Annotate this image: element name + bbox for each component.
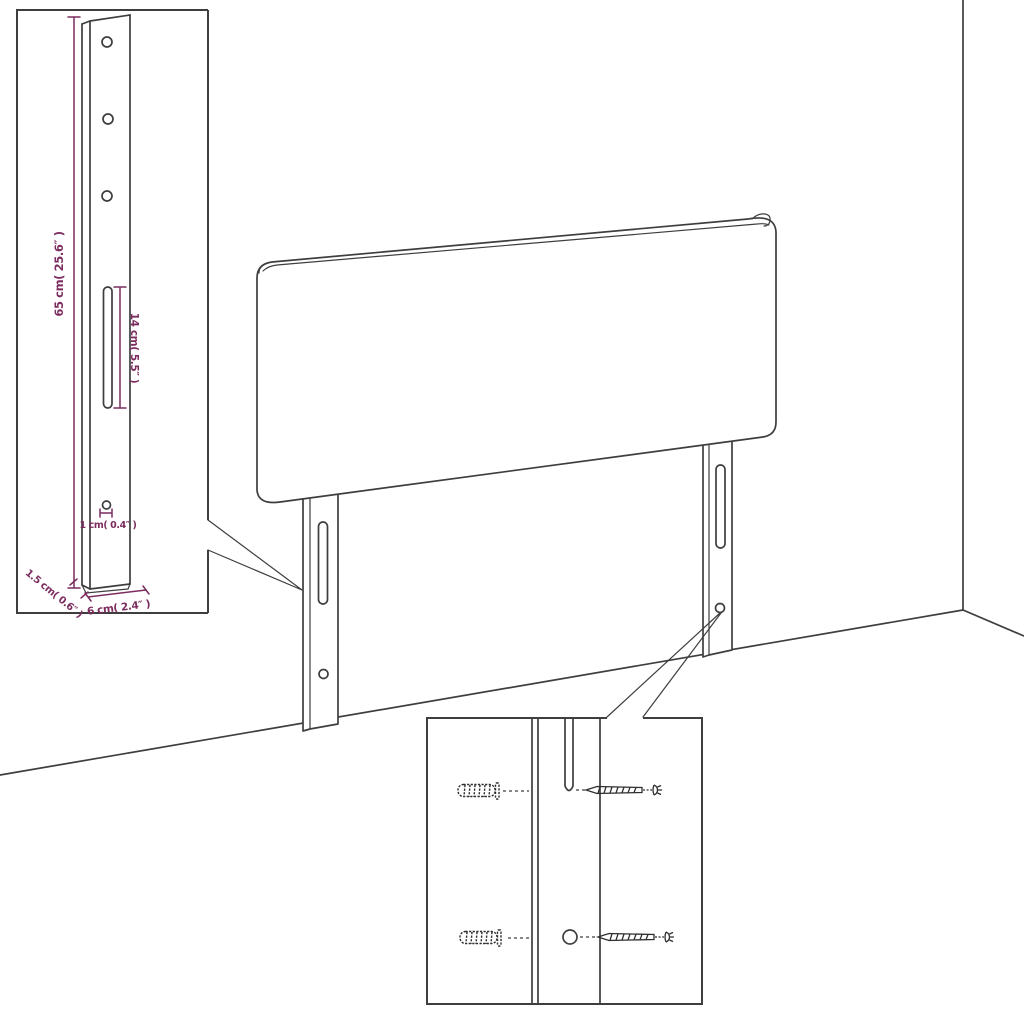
- dim-hole-label: 1 cm( 0.4″ ): [79, 520, 136, 531]
- callout-left: [208, 520, 302, 590]
- dimension-hole: 1 cm( 0.4″ ): [79, 509, 136, 531]
- screw-icon-top: [586, 785, 662, 795]
- bracket-drawing: [82, 15, 130, 593]
- inset-detail-left: 65 cm( 25.6″ ) 14 cm( 5.5″ ) 1 cm( 0.4″ …: [17, 10, 208, 620]
- floor-line-left: [0, 610, 963, 775]
- dimension-height: 65 cm( 25.6″ ): [52, 17, 80, 588]
- right-leg-body: [703, 415, 732, 657]
- leg-details: [319, 465, 726, 679]
- bracket-vertical-edges: [82, 15, 130, 589]
- bracket-hole-3: [102, 191, 112, 201]
- diagram-canvas: 65 cm( 25.6″ ) 14 cm( 5.5″ ) 1 cm( 0.4″ …: [0, 0, 1024, 1024]
- magnified-leg-strip: [532, 719, 600, 1003]
- left-leg-body: [303, 465, 338, 731]
- headboard-right-leg: [703, 415, 732, 657]
- alignment-dashes: [503, 790, 597, 938]
- floor-line-right: [963, 610, 1024, 636]
- inset-detail-bottom: [427, 718, 702, 1004]
- bracket-hole-2: [103, 114, 113, 124]
- wall-plug-icon-bottom: [460, 930, 501, 946]
- wall-plug-icon-top: [458, 783, 499, 799]
- bracket-slot: [104, 287, 113, 408]
- bracket-small-hole: [103, 501, 111, 509]
- callout-left-lines: [208, 520, 302, 590]
- dim-height-label: 65 cm( 25.6″ ): [52, 231, 66, 316]
- dim-height-line: [68, 17, 80, 588]
- dim-slot-line: [114, 287, 126, 408]
- callout-right: [607, 613, 721, 717]
- headboard-dimension-diagram: 65 cm( 25.6″ ) 14 cm( 5.5″ ) 1 cm( 0.4″ …: [0, 0, 1024, 1024]
- screw-icon-bottom: [598, 932, 674, 942]
- headboard-left-leg: [303, 465, 338, 731]
- headboard-panel: [257, 214, 776, 503]
- magnified-hole: [563, 930, 577, 944]
- dim-hole-bracket: [100, 509, 112, 517]
- dimension-slot: 14 cm( 5.5″ ): [114, 287, 140, 408]
- dim-slot-label: 14 cm( 5.5″ ): [128, 313, 140, 383]
- callout-right-lines: [607, 613, 721, 717]
- dim-width-label: 6 cm( 2.4″ ): [86, 598, 151, 618]
- bracket-hole-1: [102, 37, 112, 47]
- magnified-slot: [565, 719, 573, 791]
